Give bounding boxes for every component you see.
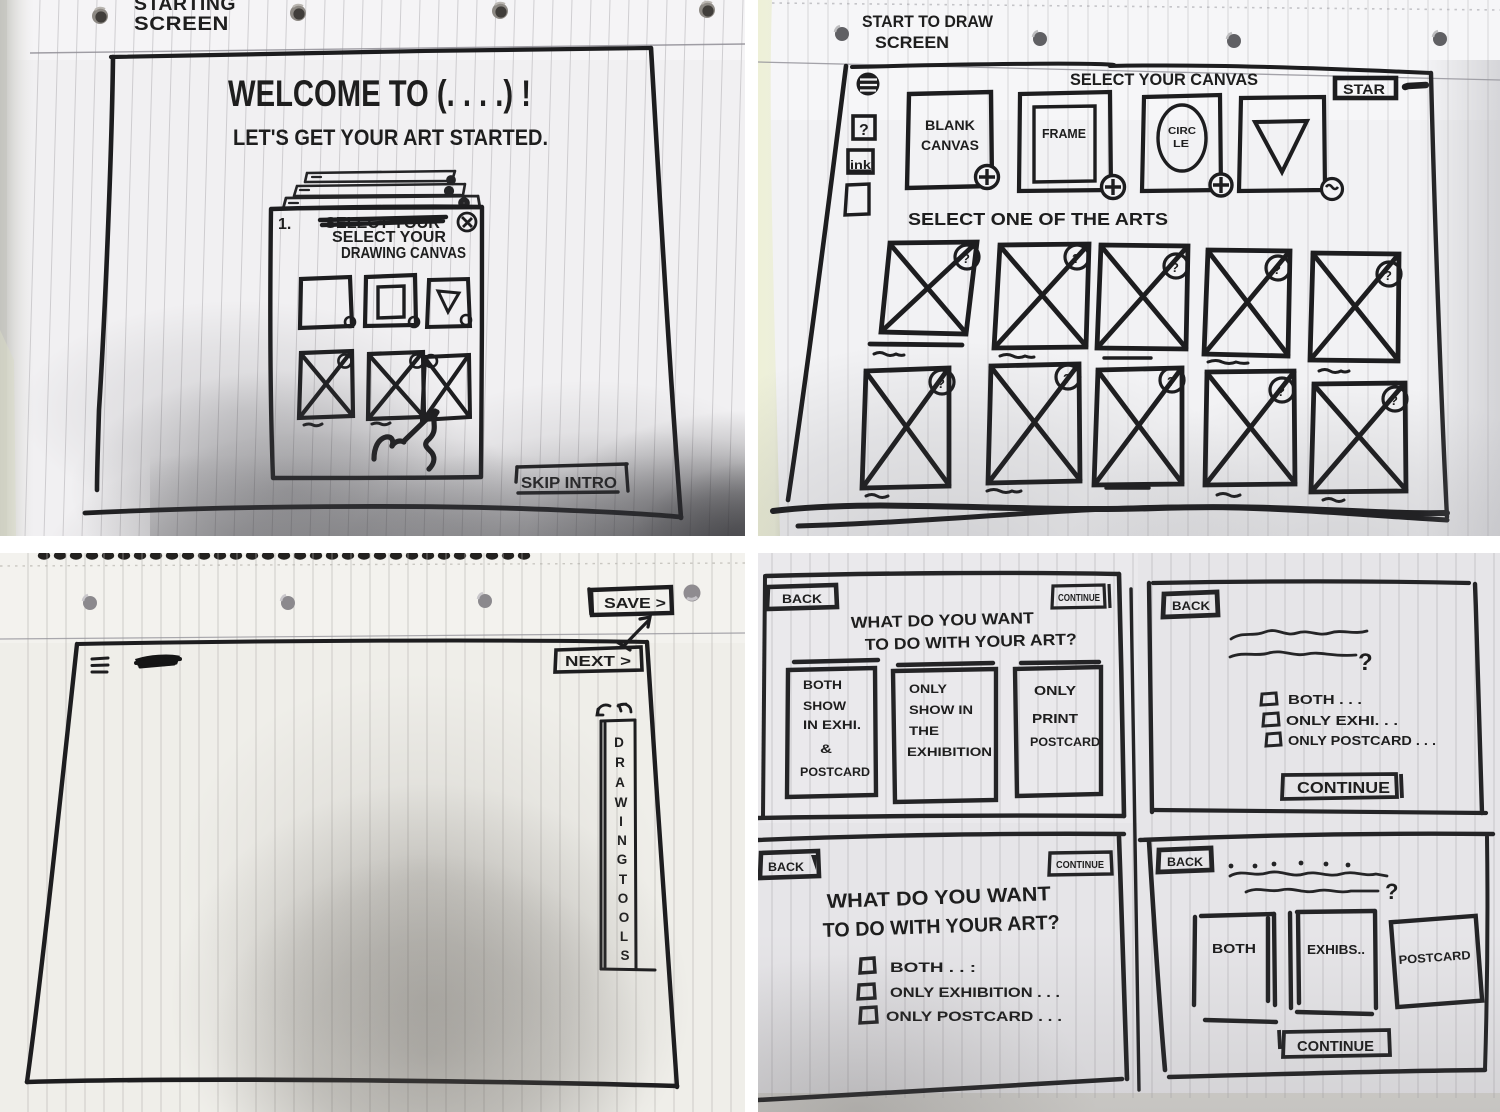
svg-text:SHOW: SHOW	[803, 699, 847, 713]
svg-text:START TO DRAW: START TO DRAW	[862, 12, 994, 31]
svg-text:?: ?	[1384, 268, 1392, 283]
svg-text:IN EXHI.: IN EXHI.	[803, 718, 861, 732]
svg-text:CANVAS: CANVAS	[921, 137, 979, 153]
svg-text:POSTCARD: POSTCARD	[800, 767, 870, 779]
svg-text:BOTH: BOTH	[803, 678, 842, 692]
svg-text:SHOW IN: SHOW IN	[909, 703, 973, 717]
svg-text:?: ?	[1358, 649, 1373, 676]
svg-text:BACK: BACK	[782, 592, 822, 606]
svg-text:BLANK: BLANK	[925, 117, 975, 133]
svg-text:CONTINUE: CONTINUE	[1297, 780, 1390, 797]
svg-text:POSTCARD: POSTCARD	[1030, 737, 1100, 749]
svg-text:STARTING: STARTING	[134, 0, 236, 15]
svg-text:SAVE >: SAVE >	[604, 595, 666, 612]
svg-text:?: ?	[962, 251, 970, 266]
svg-text:NEXT >: NEXT >	[565, 653, 631, 670]
svg-text:?: ?	[1273, 262, 1281, 277]
svg-text:BACK: BACK	[1172, 599, 1210, 613]
svg-text:?: ?	[1072, 251, 1080, 266]
svg-text:&: &	[820, 742, 832, 756]
svg-text:ONLY: ONLY	[1034, 684, 1077, 698]
svg-text:SELECT ONE OF THE ARTS: SELECT ONE OF THE ARTS	[908, 209, 1168, 229]
svg-text:PRINT: PRINT	[1032, 712, 1078, 726]
svg-text:?: ?	[1171, 260, 1179, 275]
svg-text:SELECT YOUR CANVAS: SELECT YOUR CANVAS	[1070, 70, 1258, 89]
svg-text:FRAME: FRAME	[1042, 126, 1086, 141]
svg-text:SELECT YOUR: SELECT YOUR	[332, 229, 446, 246]
svg-text:1.: 1.	[278, 216, 291, 233]
svg-text:STAR: STAR	[1343, 81, 1385, 97]
svg-text:DRAWING CANVAS: DRAWING CANVAS	[341, 245, 466, 262]
svg-text:EXHIBITION: EXHIBITION	[907, 747, 992, 759]
svg-text:CONTINUE: CONTINUE	[1056, 859, 1104, 871]
svg-text:?: ?	[1385, 879, 1398, 904]
svg-text:ONLY: ONLY	[909, 682, 947, 696]
svg-text:BACK: BACK	[768, 860, 804, 874]
svg-text:BACK: BACK	[1167, 855, 1203, 869]
svg-text:BOTH . . .: BOTH . . .	[1288, 693, 1362, 707]
svg-text:ONLY EXHI. . .: ONLY EXHI. . .	[1286, 714, 1398, 728]
svg-text:LE: LE	[1173, 138, 1189, 150]
svg-text:WELCOME TO (. . . .) !: WELCOME TO (. . . .) !	[228, 73, 531, 114]
svg-text:SCREEN: SCREEN	[134, 14, 229, 35]
svg-text:?: ?	[859, 122, 869, 139]
svg-text:THE: THE	[909, 724, 939, 738]
svg-text:LET'S GET YOUR ART STARTED.: LET'S GET YOUR ART STARTED.	[233, 125, 548, 150]
svg-text:SCREEN: SCREEN	[875, 33, 949, 52]
svg-text:CONTINUE: CONTINUE	[1058, 593, 1100, 604]
svg-text:ONLY POSTCARD . . .: ONLY POSTCARD . . .	[1288, 734, 1436, 748]
svg-text:CIRC: CIRC	[1168, 125, 1196, 137]
